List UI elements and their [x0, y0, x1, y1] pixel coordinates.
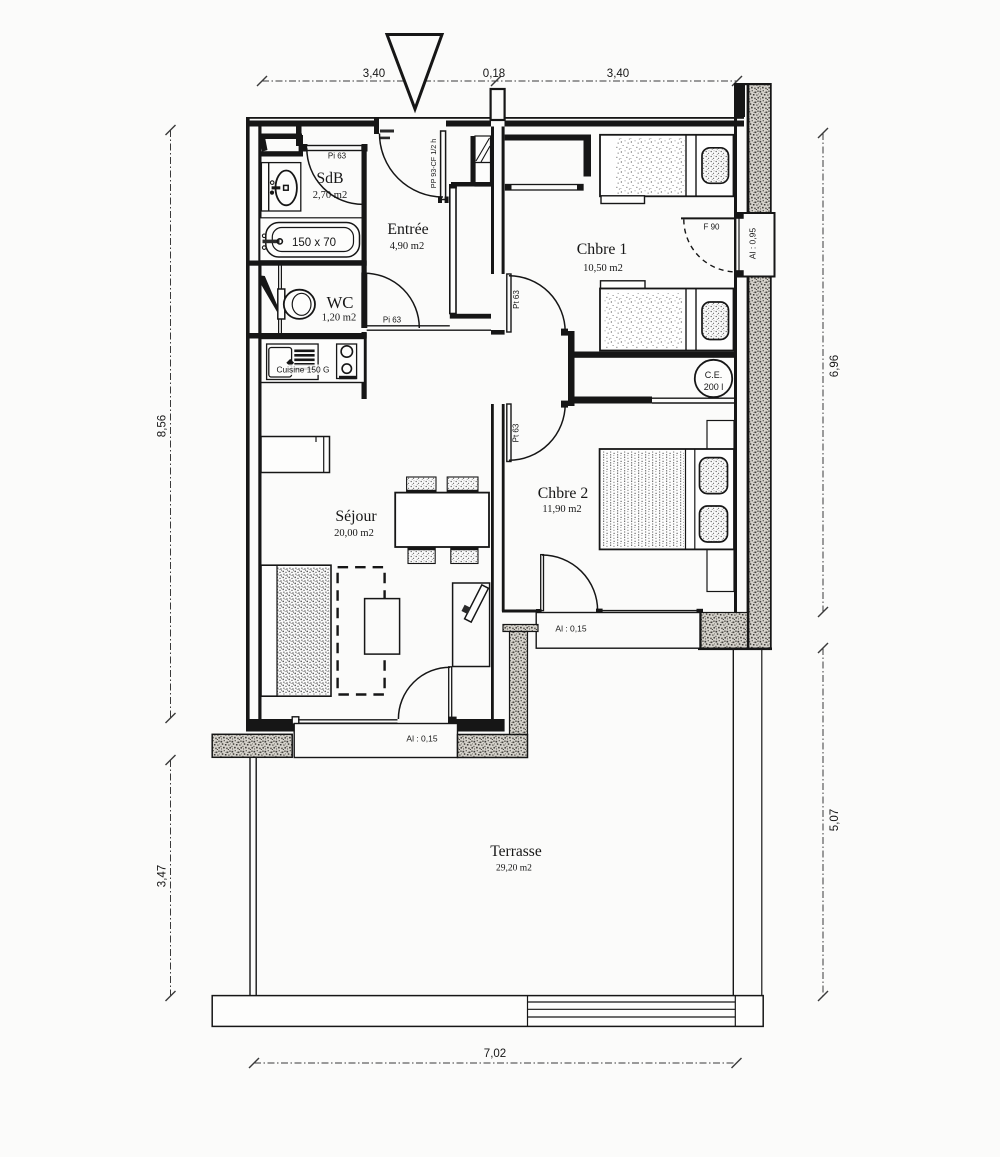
svg-text:1,20 m2: 1,20 m2 [322, 313, 356, 324]
svg-text:Terrasse: Terrasse [490, 843, 542, 860]
svg-text:5,07: 5,07 [829, 809, 841, 831]
svg-text:F 90: F 90 [703, 223, 720, 232]
svg-text:3,40: 3,40 [607, 68, 629, 80]
svg-text:Pt 63: Pt 63 [512, 423, 521, 442]
svg-text:Entrée: Entrée [387, 221, 428, 238]
svg-text:4,90 m2: 4,90 m2 [390, 241, 424, 252]
svg-text:3,40: 3,40 [363, 68, 385, 80]
svg-text:0,18: 0,18 [483, 68, 505, 80]
svg-text:10,50 m2: 10,50 m2 [583, 263, 623, 274]
svg-text:29,20 m2: 29,20 m2 [496, 864, 532, 874]
svg-text:150 x 70: 150 x 70 [292, 237, 336, 249]
svg-text:200 l: 200 l [704, 382, 724, 392]
svg-text:Chbre 1: Chbre 1 [577, 241, 627, 258]
svg-text:Séjour: Séjour [335, 508, 377, 525]
svg-text:Al : 0,15: Al : 0,15 [406, 734, 437, 744]
svg-text:Pi 63: Pi 63 [328, 152, 347, 161]
svg-text:C.E.: C.E. [705, 370, 723, 380]
svg-text:6,96: 6,96 [829, 355, 841, 377]
svg-text:2,70 m2: 2,70 m2 [313, 190, 347, 201]
svg-text:PP 93-CF 1/2 h: PP 93-CF 1/2 h [429, 139, 438, 188]
svg-text:Al : 0,15: Al : 0,15 [555, 624, 586, 634]
svg-text:Pi 63: Pi 63 [383, 316, 402, 325]
svg-text:Al : 0,95: Al : 0,95 [747, 228, 757, 259]
svg-text:20,00 m2: 20,00 m2 [334, 528, 374, 539]
svg-text:8,56: 8,56 [157, 415, 169, 437]
svg-text:7,02: 7,02 [484, 1048, 506, 1060]
svg-text:Cuisine 150 G: Cuisine 150 G [276, 365, 329, 375]
svg-text:Pt 63: Pt 63 [512, 290, 521, 309]
svg-text:Chbre 2: Chbre 2 [538, 485, 589, 502]
svg-text:WC: WC [326, 293, 353, 312]
svg-text:11,90 m2: 11,90 m2 [542, 504, 581, 515]
svg-text:3,47: 3,47 [157, 865, 169, 887]
